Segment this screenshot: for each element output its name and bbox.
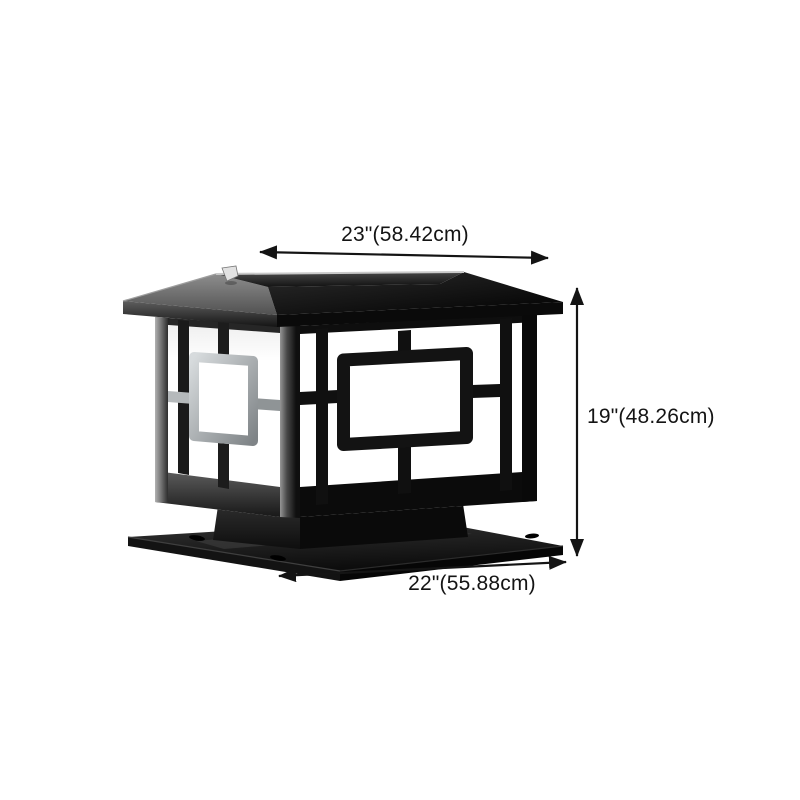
dimension-label-height: 19"(48.26cm): [587, 404, 715, 429]
dimension-label-base-width: 22"(55.88cm): [347, 571, 597, 596]
product-dimension-diagram: 23"(58.42cm) 19"(48.26cm) 22"(55.88cm): [0, 0, 800, 800]
lantern-left-face: [155, 317, 280, 517]
dimension-arrow-top-width: [260, 252, 548, 258]
lantern-right-face: [300, 314, 537, 517]
corner-post: [280, 325, 300, 518]
lantern-illustration: [0, 0, 800, 800]
dimension-label-top-width: 23"(58.42cm): [280, 222, 530, 247]
